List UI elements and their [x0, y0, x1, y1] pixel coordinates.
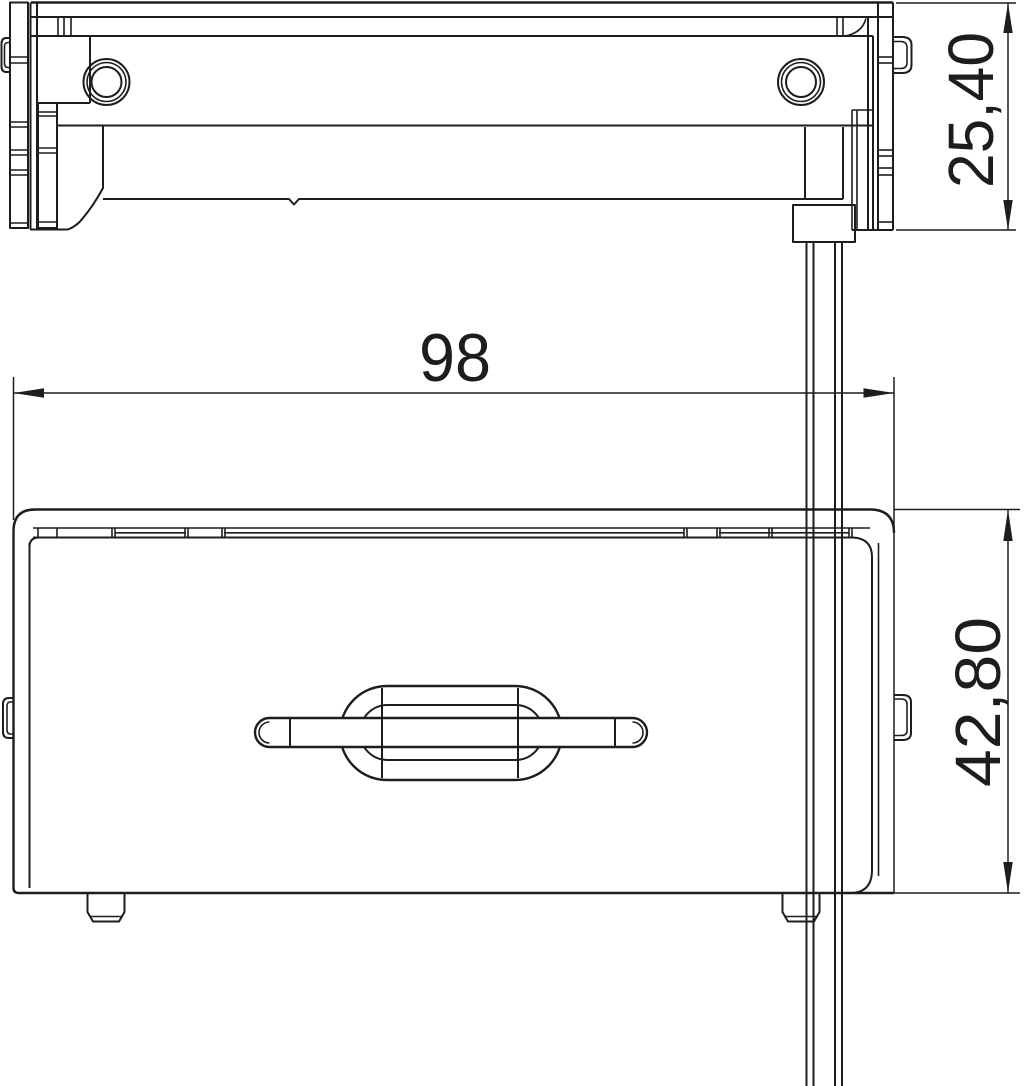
left-bracket-strip [10, 3, 28, 229]
drawing-canvas: 25,40 98 42,80 [0, 0, 1024, 1086]
background [0, 0, 1024, 1086]
left-bracket-lower-strip [38, 103, 57, 228]
handle-grip-bar [255, 718, 647, 747]
dimension-label-front-view-height: 42,80 [942, 617, 1014, 787]
technical-drawing: 25,40 98 42,80 [0, 0, 1024, 1086]
dimension-label-top-view-height: 25,40 [935, 32, 1007, 188]
dimension-label-overall-width: 98 [419, 320, 491, 396]
